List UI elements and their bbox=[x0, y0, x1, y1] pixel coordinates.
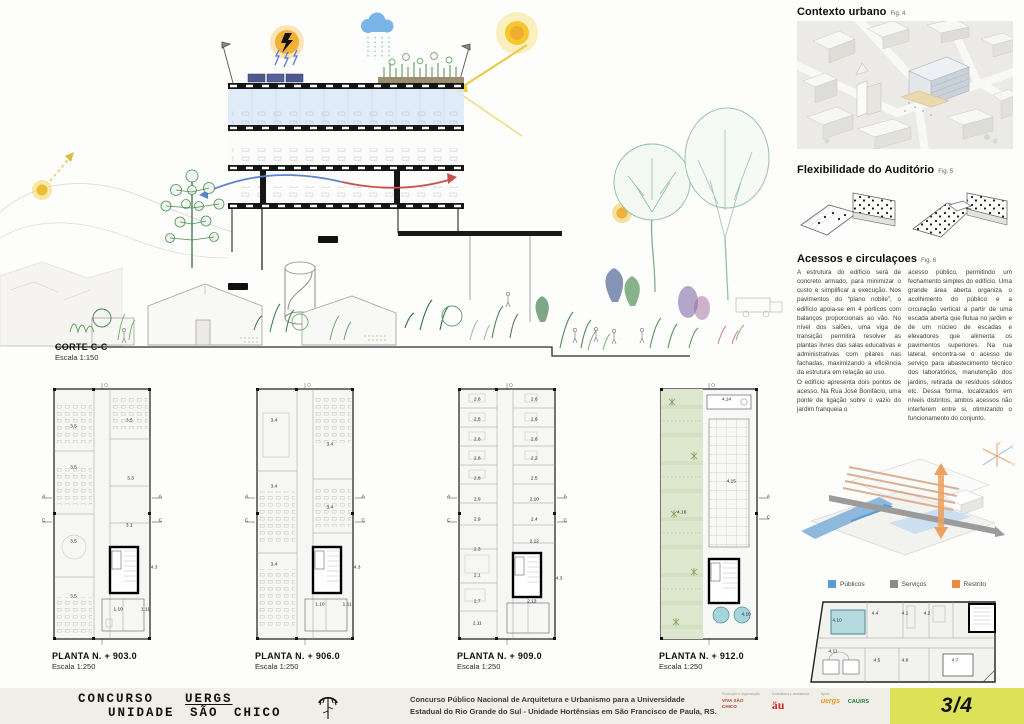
contexto-title: Contexto urbano bbox=[797, 6, 887, 18]
title-word-concurso: CONCURSO bbox=[78, 692, 154, 706]
room-label: 3.5 bbox=[70, 425, 77, 430]
room-label: 4.10 bbox=[832, 619, 841, 624]
urban-context-render bbox=[797, 21, 1013, 149]
plan-909-title: PLANTA N. + 909.0 bbox=[457, 651, 569, 661]
room-label: 2.4 bbox=[531, 518, 538, 523]
room-label: 4.2 bbox=[924, 612, 931, 617]
room-label: 3.5 bbox=[126, 420, 133, 425]
room-label: C bbox=[362, 519, 365, 524]
plan-906-canvas: ACAC3.43.43.43.43.44.31.101.11 bbox=[243, 383, 367, 645]
plan-890-canvas: 4.104.44.14.24.114.54.64.7 bbox=[803, 596, 1003, 688]
room-label: 4.16 bbox=[677, 512, 686, 517]
room-label: A bbox=[767, 496, 770, 501]
room-label: 3.4 bbox=[271, 420, 278, 425]
room-label: 4.3 bbox=[354, 567, 361, 572]
room-label: 2.2 bbox=[531, 458, 538, 463]
room-label: 3.5 bbox=[70, 595, 77, 600]
logo-cau-rs: CAU/RS bbox=[848, 699, 869, 705]
legend-publicos: Públicos bbox=[828, 580, 865, 588]
plan-909-scale: Escala 1:250 bbox=[457, 662, 569, 671]
room-label: C bbox=[564, 519, 567, 524]
servicos-label: Serviços bbox=[902, 581, 927, 588]
room-label: 4.4 bbox=[872, 612, 879, 617]
plan-903-caption: PLANTA N. + 903.0 Escala 1:250 bbox=[52, 651, 164, 671]
publicos-label: Públicos bbox=[840, 581, 865, 588]
logo-group-label-consultoria: Consultoria e assessoria bbox=[772, 692, 809, 696]
section-scale: Escala 1:150 bbox=[55, 353, 108, 362]
page-number-badge: 3/4 bbox=[890, 688, 1024, 724]
room-label: 4.5 bbox=[874, 660, 881, 665]
circulation-axon-diagram: z' y x bbox=[793, 437, 1017, 573]
room-label: 3.1 bbox=[126, 525, 133, 530]
publicos-swatch bbox=[828, 580, 836, 588]
plan-909-caption: PLANTA N. + 909.0 Escala 1:250 bbox=[457, 651, 569, 671]
lower-structure bbox=[232, 209, 562, 322]
plan-912: AC4.144.154.164.10 PLANTA N. + 912.0 Esc… bbox=[647, 383, 771, 671]
auditorium-extended-diagram bbox=[907, 179, 1013, 243]
svg-text:y: y bbox=[1011, 444, 1014, 450]
room-label: 2.6 bbox=[531, 399, 538, 404]
room-label: 4.15 bbox=[727, 480, 736, 485]
room-label: 2.6 bbox=[531, 419, 538, 424]
contexto-urbano-block: Contexto urbano Fig. 4 bbox=[793, 6, 1021, 154]
acessos-fig-ref: Fig. 6 bbox=[921, 258, 936, 264]
room-label: 4.14 bbox=[722, 399, 731, 404]
logo-group-promocao: Promoção e organização VIVA SÃO CHICO bbox=[722, 692, 760, 713]
credit-line-1: Concurso Público Nacional de Arquitetura… bbox=[410, 694, 717, 706]
page-number: 3/4 bbox=[941, 694, 973, 718]
room-label: A bbox=[42, 496, 45, 501]
logo-group-apoio: Apoio uergs CAU/RS bbox=[821, 692, 869, 713]
plan-912-title: PLANTA N. + 912.0 bbox=[659, 651, 771, 661]
room-label: A bbox=[159, 496, 162, 501]
contexto-fig-ref: Fig. 4 bbox=[891, 11, 906, 17]
room-label: 2.8 bbox=[474, 419, 481, 424]
circulation-legend: Públicos Serviços Restrito bbox=[793, 580, 1021, 588]
room-label: C bbox=[767, 517, 770, 522]
plan-912-scale: Escala 1:250 bbox=[659, 662, 771, 671]
room-label: 2.10 bbox=[530, 498, 539, 503]
plan-912-drawing bbox=[647, 383, 771, 645]
room-label: 4.3 bbox=[556, 577, 563, 582]
acessos-title: Acessos e circulaçoes bbox=[797, 253, 917, 265]
room-label: C bbox=[159, 519, 162, 524]
auditorium-retracted-diagram bbox=[795, 179, 901, 243]
room-label: 4.3 bbox=[151, 567, 158, 572]
room-label: 3.4 bbox=[326, 506, 333, 511]
room-label: 1.10 bbox=[315, 603, 324, 608]
room-label: 3.5 bbox=[70, 467, 77, 472]
competition-board-page: { "board": { "page_number": "3/4" }, "se… bbox=[0, 0, 1024, 724]
room-label: 2.8 bbox=[474, 458, 481, 463]
araucaria-tree-icon bbox=[316, 692, 340, 720]
room-label: 2.7 bbox=[474, 601, 481, 606]
room-label: 2.8 bbox=[474, 438, 481, 443]
room-label: 3.4 bbox=[271, 564, 278, 569]
room-label: 4.10 bbox=[742, 614, 751, 619]
rain-cloud-icon bbox=[361, 13, 394, 61]
legend-restrito: Restrito bbox=[952, 580, 986, 588]
legend-servicos: Serviços bbox=[890, 580, 927, 588]
logo-group-consultoria: Consultoria e assessoria äu bbox=[772, 692, 809, 713]
logo-group-label-promocao: Promoção e organização bbox=[722, 692, 760, 696]
room-label: 2.8 bbox=[474, 478, 481, 483]
servicos-swatch bbox=[890, 580, 898, 588]
room-label: 3.3 bbox=[127, 478, 134, 483]
room-label: 3.5 bbox=[70, 540, 77, 545]
sponsor-logos: Promoção e organização VIVA SÃO CHICO Co… bbox=[722, 692, 869, 713]
title-line-unidade: UNIDADE SÃO CHICO bbox=[78, 706, 282, 720]
energy-lightning-icon bbox=[270, 25, 304, 67]
room-label: 2.1 bbox=[474, 574, 481, 579]
room-label: C bbox=[245, 519, 248, 524]
room-label: 2.13 bbox=[527, 601, 536, 606]
room-label: 2.3 bbox=[474, 548, 481, 553]
logo-group-label-apoio: Apoio bbox=[821, 692, 869, 696]
auditorio-title: Flexibilidade do Auditório bbox=[797, 164, 934, 176]
room-label: 2.11 bbox=[473, 623, 482, 628]
svg-text:x: x bbox=[1012, 462, 1015, 468]
logo-au: äu bbox=[772, 698, 785, 713]
restrito-swatch bbox=[952, 580, 960, 588]
room-label: 1.11 bbox=[343, 603, 352, 608]
room-label: C bbox=[447, 519, 450, 524]
right-column: Contexto urbano Fig. 4 bbox=[793, 6, 1021, 714]
room-label: 3.4 bbox=[326, 443, 333, 448]
plan-906-caption: PLANTA N. + 906.0 Escala 1:250 bbox=[255, 651, 367, 671]
competition-credits: Concurso Público Nacional de Arquitetura… bbox=[410, 694, 717, 718]
small-sun-left-icon bbox=[32, 152, 74, 200]
building-section bbox=[222, 42, 562, 324]
room-label: 4.1 bbox=[902, 612, 909, 617]
plan-906-title: PLANTA N. + 906.0 bbox=[255, 651, 367, 661]
svg-text:z': z' bbox=[998, 441, 1002, 447]
acessos-block: Acessos e circulaçoes Fig. 6 A estrutura… bbox=[793, 253, 1021, 423]
plan-909-drawing bbox=[445, 383, 569, 645]
flexibilidade-auditorio-block: Flexibilidade do Auditório Fig. 5 bbox=[793, 164, 1021, 243]
right-trees bbox=[614, 108, 769, 300]
room-label: 1.10 bbox=[113, 609, 122, 614]
plan-903-title: PLANTA N. + 903.0 bbox=[52, 651, 164, 661]
section-illustration bbox=[0, 0, 790, 362]
room-label: 2.12 bbox=[530, 540, 539, 545]
room-label: A bbox=[362, 496, 365, 501]
corte-caption: CORTE C-C Escala 1:150 bbox=[55, 342, 108, 362]
room-label: C bbox=[42, 519, 45, 524]
title-word-uergs: UERGS bbox=[185, 692, 233, 706]
houses bbox=[92, 284, 396, 345]
plan-903: ACAC3.53.53.53.33.53.14.33.51.101.11 PLA… bbox=[40, 383, 164, 671]
section-drawing-corte-cc: CORTE C-C Escala 1:150 bbox=[0, 0, 790, 362]
room-label: 2.5 bbox=[531, 478, 538, 483]
background-truck bbox=[736, 298, 782, 317]
sun-ray-arrows bbox=[456, 45, 527, 136]
solar-panels-icon bbox=[248, 74, 303, 82]
plan-906-scale: Escala 1:250 bbox=[255, 662, 367, 671]
room-label: 4.7 bbox=[952, 660, 959, 665]
room-label: A bbox=[447, 496, 450, 501]
room-label: 1.11 bbox=[141, 609, 150, 614]
credit-line-2: Estadual do Rio Grande do Sul - Unidade … bbox=[410, 706, 717, 718]
araucaria-tree bbox=[161, 170, 224, 268]
plan-903-canvas: ACAC3.53.53.53.33.53.14.33.51.101.11 bbox=[40, 383, 164, 645]
plan-909: ACAC2.82.62.82.62.82.62.82.22.82.52.92.1… bbox=[445, 383, 569, 671]
competition-title: CONCURSO UERGS UNIDADE SÃO CHICO bbox=[78, 692, 282, 721]
restrito-label: Restrito bbox=[964, 581, 986, 588]
room-label: 2.6 bbox=[531, 438, 538, 443]
room-label: 4.11 bbox=[829, 651, 838, 656]
acessos-text-col2: acesso público, permitindo um fechamento… bbox=[908, 268, 1012, 423]
room-label: 4.6 bbox=[902, 660, 909, 665]
room-label: A bbox=[245, 496, 248, 501]
green-roof bbox=[378, 53, 464, 83]
logo-uergs: uergs bbox=[821, 698, 840, 705]
plan-903-scale: Escala 1:250 bbox=[52, 662, 164, 671]
board-footer: CONCURSO UERGS UNIDADE SÃO CHICO Concurs… bbox=[0, 688, 1024, 724]
room-label: 2.9 bbox=[474, 498, 481, 503]
plan-912-caption: PLANTA N. + 912.0 Escala 1:250 bbox=[659, 651, 771, 671]
auditorio-fig-ref: Fig. 5 bbox=[938, 169, 953, 175]
room-label: 2.8 bbox=[474, 399, 481, 404]
axis-glyph: z' y x bbox=[983, 441, 1015, 468]
plan-909-canvas: ACAC2.82.62.82.62.82.62.82.22.82.52.92.1… bbox=[445, 383, 569, 645]
sun-icon bbox=[496, 12, 538, 54]
plan-890-drawing bbox=[803, 596, 1003, 688]
plan-912-canvas: AC4.144.154.164.10 bbox=[647, 383, 771, 645]
plan-906: ACAC3.43.43.43.43.44.31.101.11 PLANTA N.… bbox=[243, 383, 367, 671]
acessos-text-col1: A estrutura do edifício será de concreto… bbox=[797, 268, 901, 423]
room-label: A bbox=[564, 496, 567, 501]
room-label: 3.4 bbox=[271, 485, 278, 490]
plan-903-drawing bbox=[40, 383, 164, 645]
section-title: CORTE C-C bbox=[55, 342, 108, 352]
room-label: 2.9 bbox=[474, 518, 481, 523]
logo-viva-sao-chico: VIVA SÃO CHICO bbox=[722, 698, 748, 709]
